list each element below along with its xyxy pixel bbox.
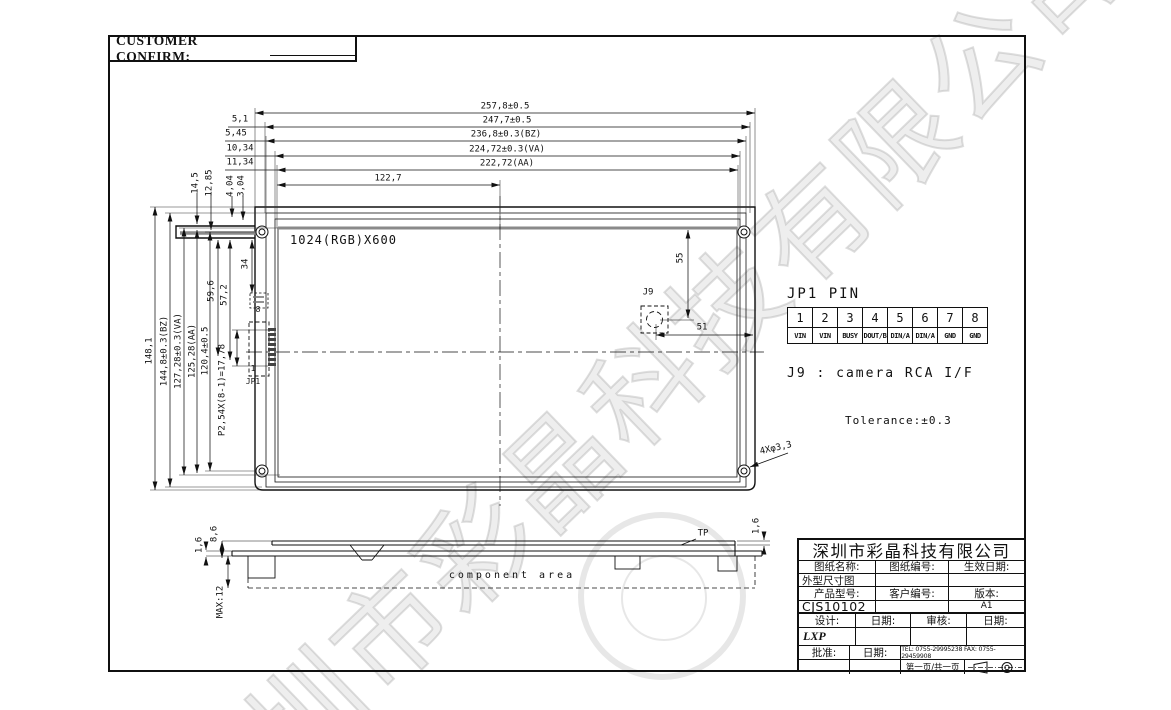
dim-width-2: 247,7±0.5 <box>483 117 532 126</box>
customer-confirm-box: CUSTOMER CONFIRM: <box>108 35 357 62</box>
jp1-pin8-label: 8 <box>256 306 261 314</box>
dim-aa-width: 222,72(AA) <box>480 160 534 169</box>
approve-date-label: 日期: <box>850 646 901 660</box>
mounting-holes <box>256 226 750 477</box>
product-model-value: CJS10102 <box>799 601 876 614</box>
projection-symbol <box>965 660 1024 674</box>
component-area-label: component area <box>449 571 575 581</box>
dim-offset-1: 5,1 <box>232 116 248 125</box>
dim-overall-height: 148,1 <box>146 337 155 364</box>
jp1-pin-table-title: JP1 PIN <box>787 286 860 302</box>
dim-offset-3: 10,34 <box>226 145 253 154</box>
dim-ul-3: 4,04 <box>227 175 236 197</box>
design-signature: LXP <box>799 628 856 646</box>
signal-1: VIN <box>788 328 813 344</box>
customer-confirm-label: CUSTOMER CONFIRM: <box>116 33 264 65</box>
approve-signature <box>799 660 850 674</box>
tolerance-note: Tolerance:±0.3 <box>845 414 952 427</box>
dim-bezel-width: 236,8±0.3(BZ) <box>471 131 541 140</box>
company-name: 深圳市彩晶科技有限公司 <box>799 540 1024 561</box>
signal-3: BUSY <box>838 328 863 344</box>
dim-side-left-thickness: 1,6 <box>196 537 205 553</box>
approve-label: 批准: <box>799 646 850 660</box>
resolution-label: 1024(RGB)X600 <box>290 234 397 246</box>
j9-dimension-lines <box>656 230 788 467</box>
pin-4: 4 <box>863 308 888 328</box>
third-angle-projection-icon <box>967 661 1023 674</box>
dim-va-height: 127,28±0.3(VA) <box>175 313 184 389</box>
review-date-value <box>967 628 1024 646</box>
dim-inner-596: 59,6 <box>208 280 217 302</box>
product-model-label: 产品型号: <box>799 587 876 601</box>
dim-inner-572: 57,2 <box>221 284 230 306</box>
customer-no-value <box>876 601 950 614</box>
dim-ul-4: 3,04 <box>238 175 247 197</box>
signal-6: DIN/A <box>913 328 938 344</box>
review-date-label: 日期: <box>967 614 1024 628</box>
dim-j9-horizontal: 51 <box>697 324 708 333</box>
signal-8: GND <box>963 328 988 344</box>
review-label: 审核: <box>911 614 967 628</box>
design-date-value <box>856 628 911 646</box>
page-info: 第一页/共一页 <box>901 660 965 674</box>
title-block-header-row-1: 图纸名称: 图纸编号: 生效日期: <box>799 560 1024 574</box>
jp1-pin-table: 1 2 3 4 5 6 7 8 VIN VIN BUSY DOUT/B DIN/… <box>787 307 988 344</box>
dim-va-width: 224,72±0.3(VA) <box>469 146 545 155</box>
effective-date-value <box>949 574 1024 587</box>
approve-date-value <box>850 660 901 674</box>
dim-side-left-height: 8,6 <box>211 526 220 542</box>
design-label: 设计: <box>799 614 856 628</box>
jp1-pin1-label: 1 <box>251 365 256 373</box>
review-signature <box>911 628 967 646</box>
dim-hole-height: 120,4±0.5 <box>202 327 211 376</box>
version-value: A1 <box>949 601 1024 614</box>
title-block-bottom-row: 第一页/共一页 <box>799 660 1024 674</box>
pin-3: 3 <box>838 308 863 328</box>
signal-4: DOUT/B <box>863 328 888 344</box>
jp1-pin-number-row: 1 2 3 4 5 6 7 8 <box>788 308 988 328</box>
dim-side-max-height: MAX:12 <box>217 586 226 619</box>
pin-8: 8 <box>963 308 988 328</box>
dim-overall-width: 257,8±0.5 <box>481 103 530 112</box>
dim-side-right-thickness: 1,6 <box>753 518 762 534</box>
dim-bezel-height: 144,8±0.3(BZ) <box>161 316 170 386</box>
drawing-name-label: 图纸名称: <box>799 560 876 574</box>
title-block-value-row-2: CJS10102 A1 <box>799 601 1024 614</box>
effective-date-label: 生效日期: <box>949 560 1024 574</box>
dim-ul-2: 12,85 <box>206 169 215 196</box>
dim-inner-34: 34 <box>242 259 251 270</box>
drawing-no-value <box>876 574 950 587</box>
drawing-name-value: 外型尺寸图 <box>799 574 876 587</box>
pin-7: 7 <box>938 308 963 328</box>
tp-label: TP <box>698 530 709 539</box>
j9-connector <box>641 306 668 333</box>
dim-ul-1: 14,5 <box>192 172 201 194</box>
dim-offset-4: 11,34 <box>226 159 253 168</box>
tel-fax: TEL: 0755-29995238 FAX: 0755-29459908 <box>901 646 1024 660</box>
title-block-header-row-2: 产品型号: 客户编号: 版本: <box>799 587 1024 601</box>
pin-1: 1 <box>788 308 813 328</box>
title-block-value-row-1: 外型尺寸图 <box>799 574 1024 587</box>
dim-j9-vertical: 55 <box>677 253 686 264</box>
title-block-design-row: 设计: 日期: 审核: 日期: <box>799 614 1024 628</box>
signal-5: DIN/A <box>888 328 913 344</box>
jp1-pin-signal-row: VIN VIN BUSY DOUT/B DIN/A DIN/A GND GND <box>788 328 988 344</box>
j9-label: J9 <box>643 289 654 298</box>
title-block: 深圳市彩晶科技有限公司 图纸名称: 图纸编号: 生效日期: 外型尺寸图 产品型号… <box>797 538 1026 672</box>
version-label: 版本: <box>949 587 1024 601</box>
j9-note: J9 : camera RCA I/F <box>787 366 974 381</box>
pin-2: 2 <box>813 308 838 328</box>
jp1-label: JP1 <box>246 378 260 386</box>
design-date-label: 日期: <box>856 614 911 628</box>
signature-line <box>270 42 355 56</box>
panel-outline <box>176 207 755 490</box>
dim-half-width: 122,7 <box>374 175 401 184</box>
drawing-no-label: 图纸编号: <box>876 560 950 574</box>
drawing-sheet: 深圳市彩晶科技有限公司 CUSTOMER CONFIRM: <box>0 0 1171 710</box>
title-block-approve-row: 批准: 日期: TEL: 0755-29995238 FAX: 0755-294… <box>799 646 1024 660</box>
signal-2: VIN <box>813 328 838 344</box>
title-block-signature-row: LXP <box>799 628 1024 646</box>
pin-6: 6 <box>913 308 938 328</box>
dim-aa-height: 125,28(AA) <box>189 324 198 378</box>
customer-no-label: 客户编号: <box>876 587 950 601</box>
dim-jp1-pitch: P2,54X(8-1)=17,78 <box>219 344 228 436</box>
pin-5: 5 <box>888 308 913 328</box>
dim-offset-2: 5,45 <box>225 130 247 139</box>
signal-7: GND <box>938 328 963 344</box>
